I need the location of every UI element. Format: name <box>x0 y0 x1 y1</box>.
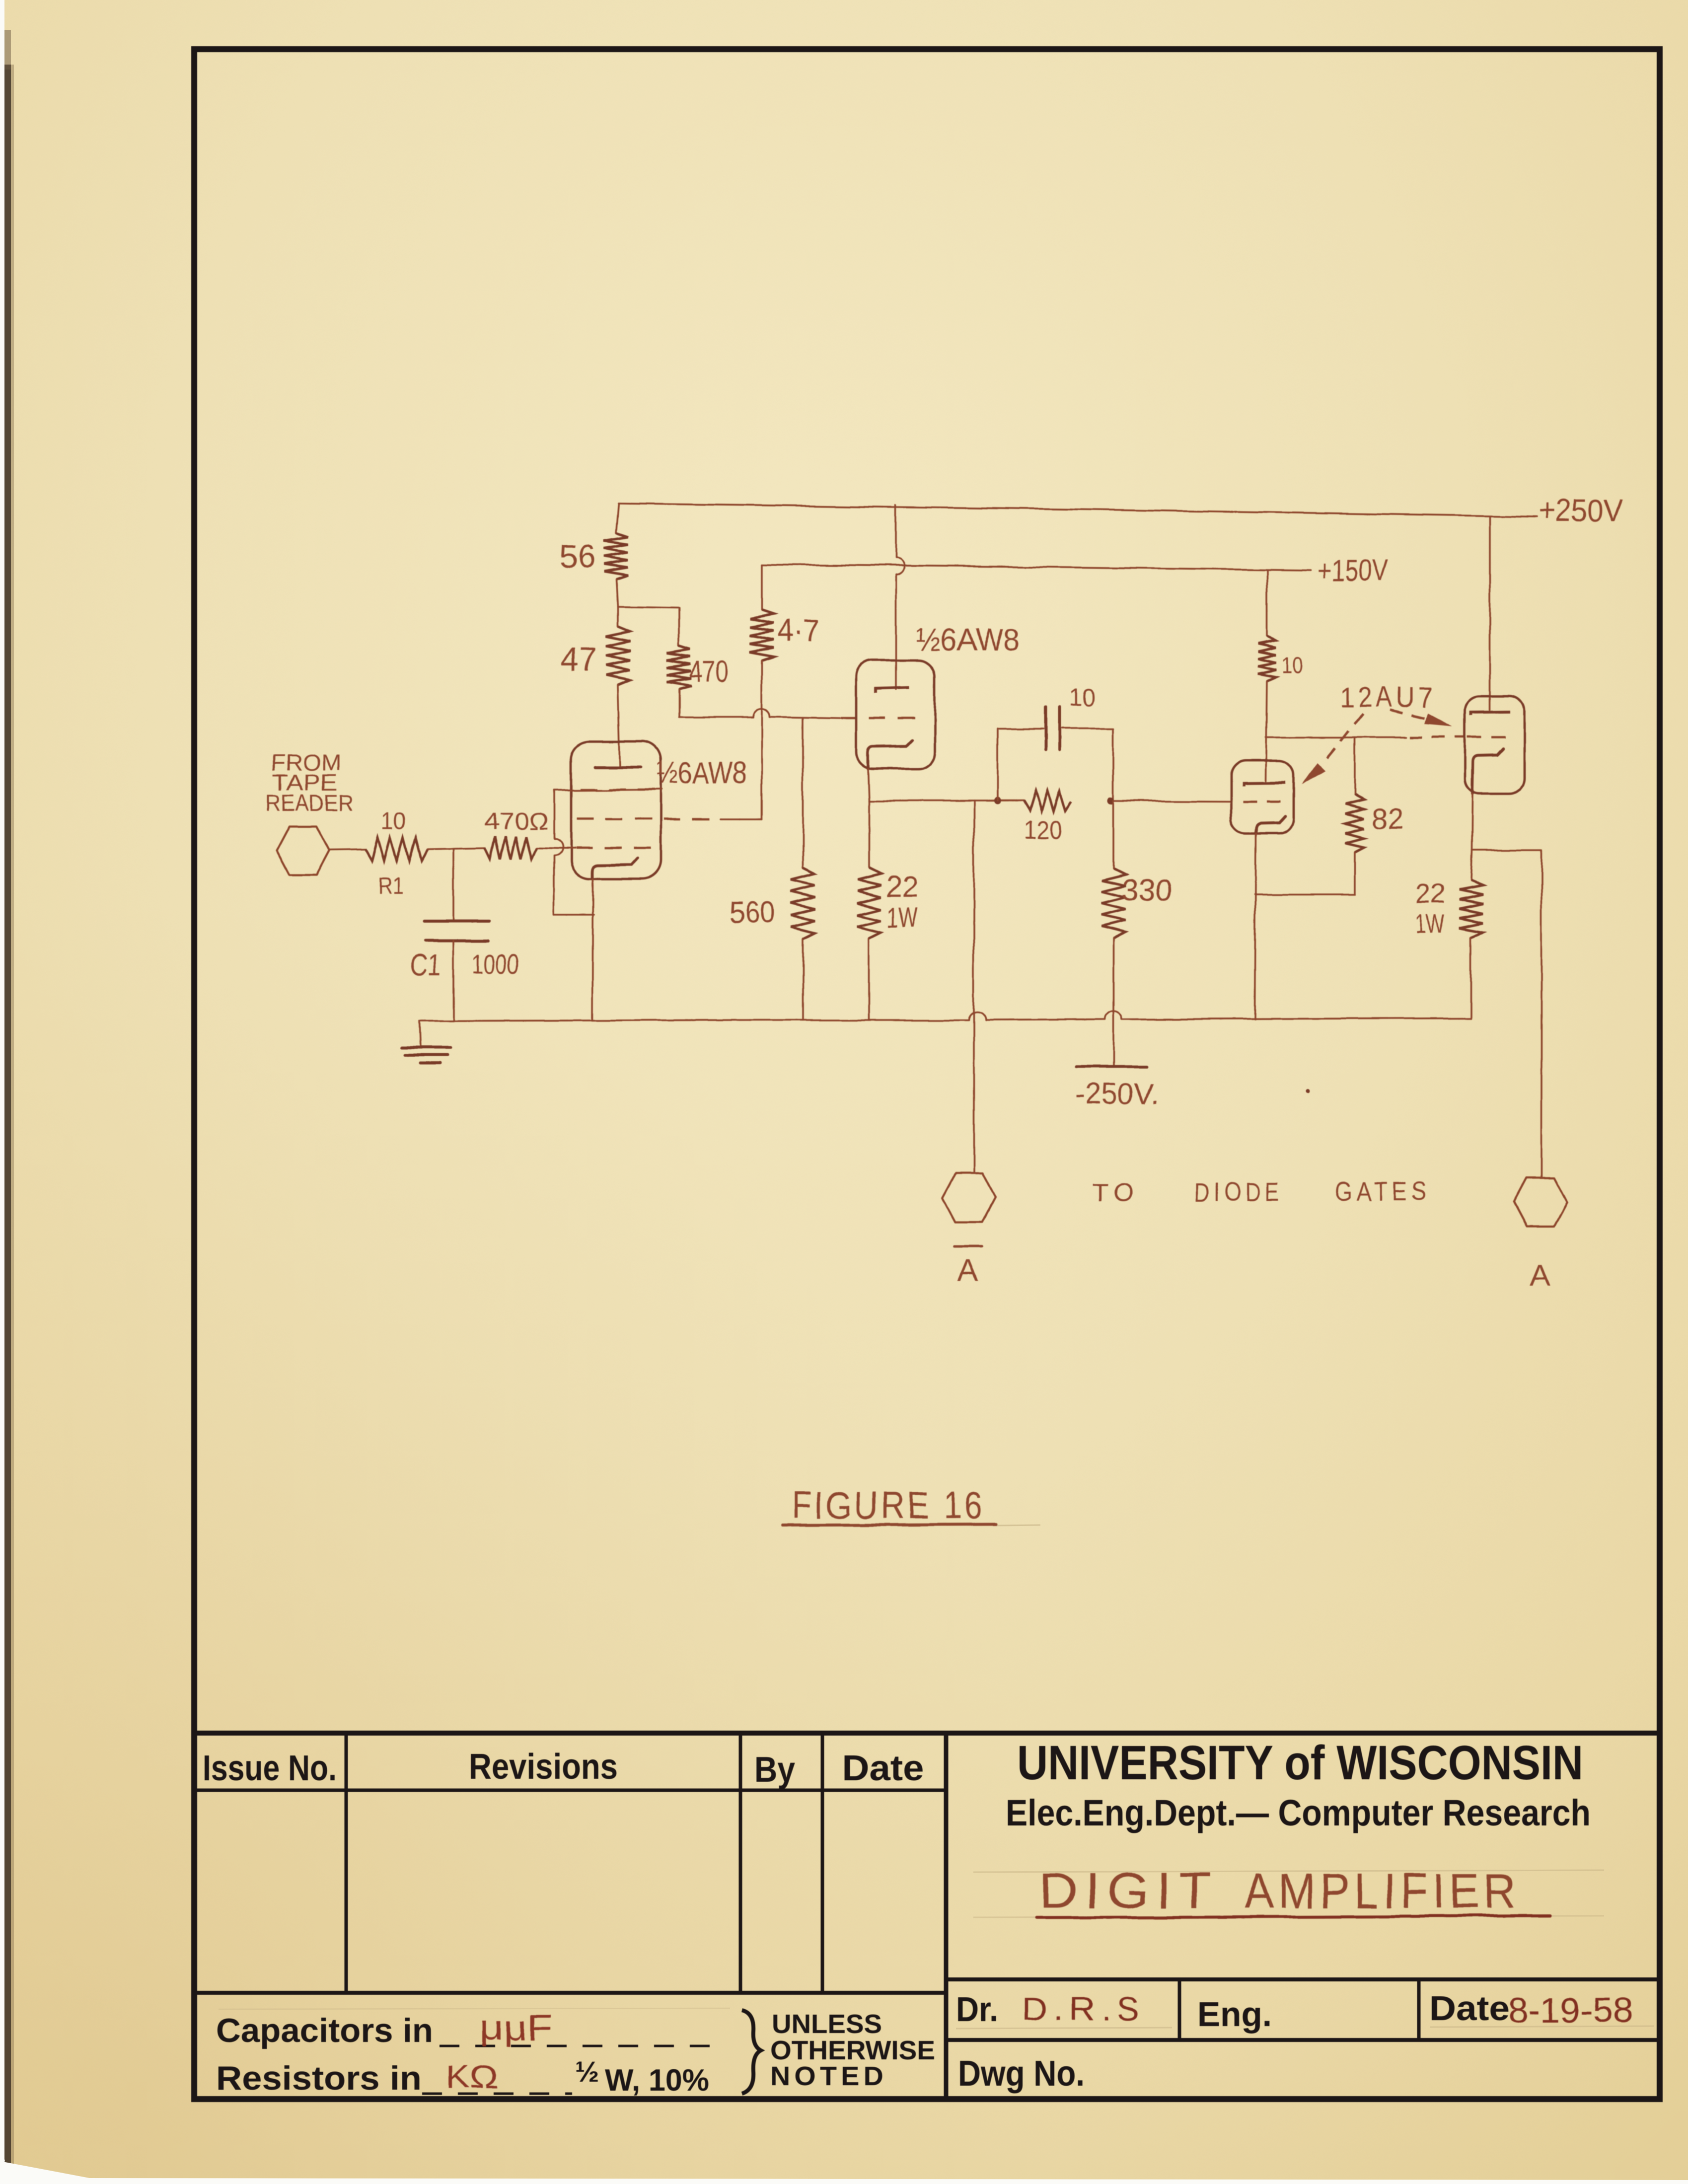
svg-text:470Ω: 470Ω <box>484 808 549 835</box>
svg-text:1W: 1W <box>1414 909 1444 939</box>
svg-text:FIGURE 16: FIGURE 16 <box>792 1483 985 1527</box>
svg-text:22: 22 <box>886 870 918 903</box>
svg-text:1W: 1W <box>887 902 918 934</box>
svg-text:D.R.S: D.R.S <box>1022 1990 1146 2027</box>
svg-text:½6AW8: ½6AW8 <box>916 622 1020 657</box>
svg-text:8-19-58: 8-19-58 <box>1508 1991 1633 2030</box>
svg-text:Revisions: Revisions <box>469 1747 618 1787</box>
svg-text:By: By <box>754 1750 795 1790</box>
svg-text:Date: Date <box>1429 1989 1510 2028</box>
svg-text:KΩ: KΩ <box>445 2058 498 2095</box>
svg-text:10: 10 <box>1281 653 1303 679</box>
svg-text:Elec.Eng.Dept.— Computer Resea: Elec.Eng.Dept.— Computer Research <box>1006 1792 1591 1833</box>
svg-text:560: 560 <box>729 895 775 930</box>
svg-text:10: 10 <box>381 808 406 835</box>
svg-text:½6AW8: ½6AW8 <box>657 755 747 791</box>
svg-text:TO: TO <box>1093 1178 1139 1208</box>
svg-text:C1: C1 <box>410 948 441 982</box>
svg-text:1000: 1000 <box>472 948 519 979</box>
svg-text:NOTED: NOTED <box>770 2061 887 2091</box>
svg-text:UNLESS: UNLESS <box>772 2009 882 2039</box>
svg-text:READER: READER <box>265 790 354 816</box>
svg-text:56: 56 <box>559 538 595 575</box>
svg-text:Issue No.: Issue No. <box>203 1748 337 1788</box>
svg-text:AMPLIFIER: AMPLIFIER <box>1244 1863 1520 1919</box>
svg-text:Dr.: Dr. <box>956 1990 998 2029</box>
svg-text:82: 82 <box>1373 802 1403 835</box>
svg-text:A: A <box>957 1254 978 1288</box>
svg-text:GATES: GATES <box>1335 1176 1430 1206</box>
svg-text:Date: Date <box>842 1748 924 1788</box>
svg-text:DIODE: DIODE <box>1194 1177 1284 1207</box>
svg-text:UNIVERSITY of WISCONSIN: UNIVERSITY of WISCONSIN <box>1017 1736 1583 1790</box>
svg-text:Resistors in: Resistors in <box>216 2059 422 2097</box>
svg-text:Eng.: Eng. <box>1197 1995 1272 2034</box>
svg-text:DIGIT: DIGIT <box>1039 1863 1218 1919</box>
svg-text:10: 10 <box>1069 683 1095 711</box>
svg-text:+150V: +150V <box>1318 554 1387 587</box>
svg-text:Dwg No.: Dwg No. <box>958 2054 1085 2094</box>
svg-text:+250V: +250V <box>1539 493 1623 528</box>
svg-text:W, 10%: W, 10% <box>605 2063 709 2098</box>
svg-text:½: ½ <box>575 2056 599 2088</box>
svg-text:120: 120 <box>1024 815 1063 845</box>
svg-text:Capacitors in: Capacitors in <box>216 2012 433 2049</box>
svg-text:OTHERWISE: OTHERWISE <box>770 2036 935 2065</box>
svg-text:A: A <box>1530 1259 1550 1293</box>
svg-text:12AU7: 12AU7 <box>1341 681 1435 714</box>
svg-text:22: 22 <box>1415 877 1445 909</box>
svg-text:4·7: 4·7 <box>778 614 819 648</box>
svg-text:-250V.: -250V. <box>1075 1078 1159 1110</box>
svg-text:47: 47 <box>561 641 597 678</box>
svg-text:470: 470 <box>689 655 729 688</box>
svg-text:330: 330 <box>1121 873 1172 907</box>
svg-text:μμF: μμF <box>480 2007 552 2048</box>
svg-text:R1: R1 <box>378 874 404 900</box>
